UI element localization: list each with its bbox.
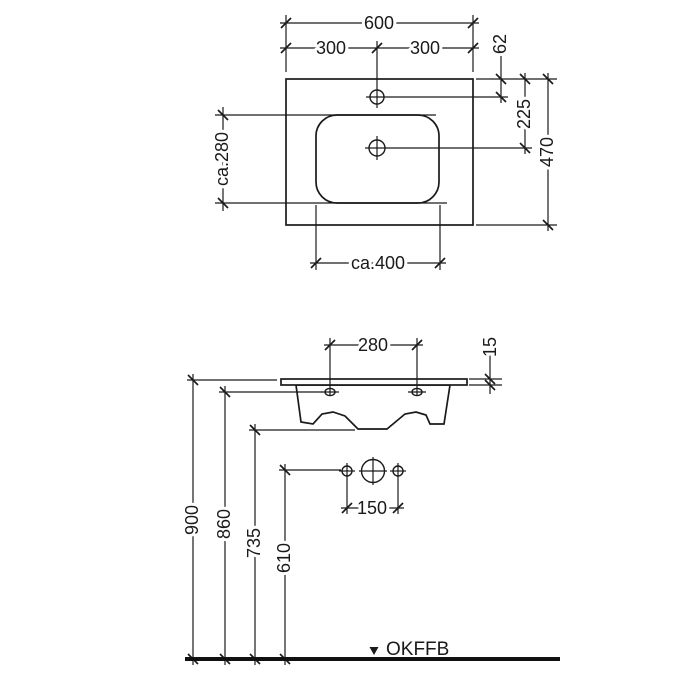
dim-height-underside-735: 735 [244,424,355,665]
dim-text-300-right: 300 [410,38,440,58]
dim-text-280: 280 [358,335,388,355]
dim-drain-offset: 225 [514,73,534,154]
dim-text-470: 470 [537,137,557,167]
supply-hole-right-icon [390,463,406,479]
dim-text-15: 15 [480,337,500,357]
dim-text-600: 600 [364,13,394,33]
dim-height-mounting-860: 860 [214,386,322,665]
dim-depth-total: 470 [537,73,557,231]
dim-text-300-left: 300 [316,38,346,58]
dim-text-900: 900 [182,505,202,535]
dim-text-62: 62 [490,34,510,54]
dim-rim-thickness: 15 [469,337,502,394]
dim-text-610: 610 [274,543,294,573]
front-view: 280 15 [182,335,560,665]
dim-width-total: 600 [280,13,479,72]
washbasin-dimension-drawing: 600 300 300 [0,0,700,700]
rim-slab [281,379,467,385]
dim-text-ca400: ca.400 [351,253,405,273]
supply-hole-left-icon [339,463,355,479]
dim-text-ca280: ca.280 [212,132,232,186]
floor-label: OKFFB [386,639,449,660]
drawing-canvas: 600 300 300 [0,0,700,700]
dim-height-connections-610: 610 [274,464,341,665]
dim-text-860: 860 [214,509,234,539]
dim-text-735: 735 [244,528,264,558]
top-view: 600 300 300 [212,13,557,273]
dim-text-150: 150 [357,498,387,518]
dim-faucet-offset: 62 [490,34,510,103]
drain-connection-icon [359,457,387,485]
floor-reference: OKFFB [370,639,450,660]
floor-level-marker-icon [370,647,379,655]
dim-text-225: 225 [514,99,534,129]
